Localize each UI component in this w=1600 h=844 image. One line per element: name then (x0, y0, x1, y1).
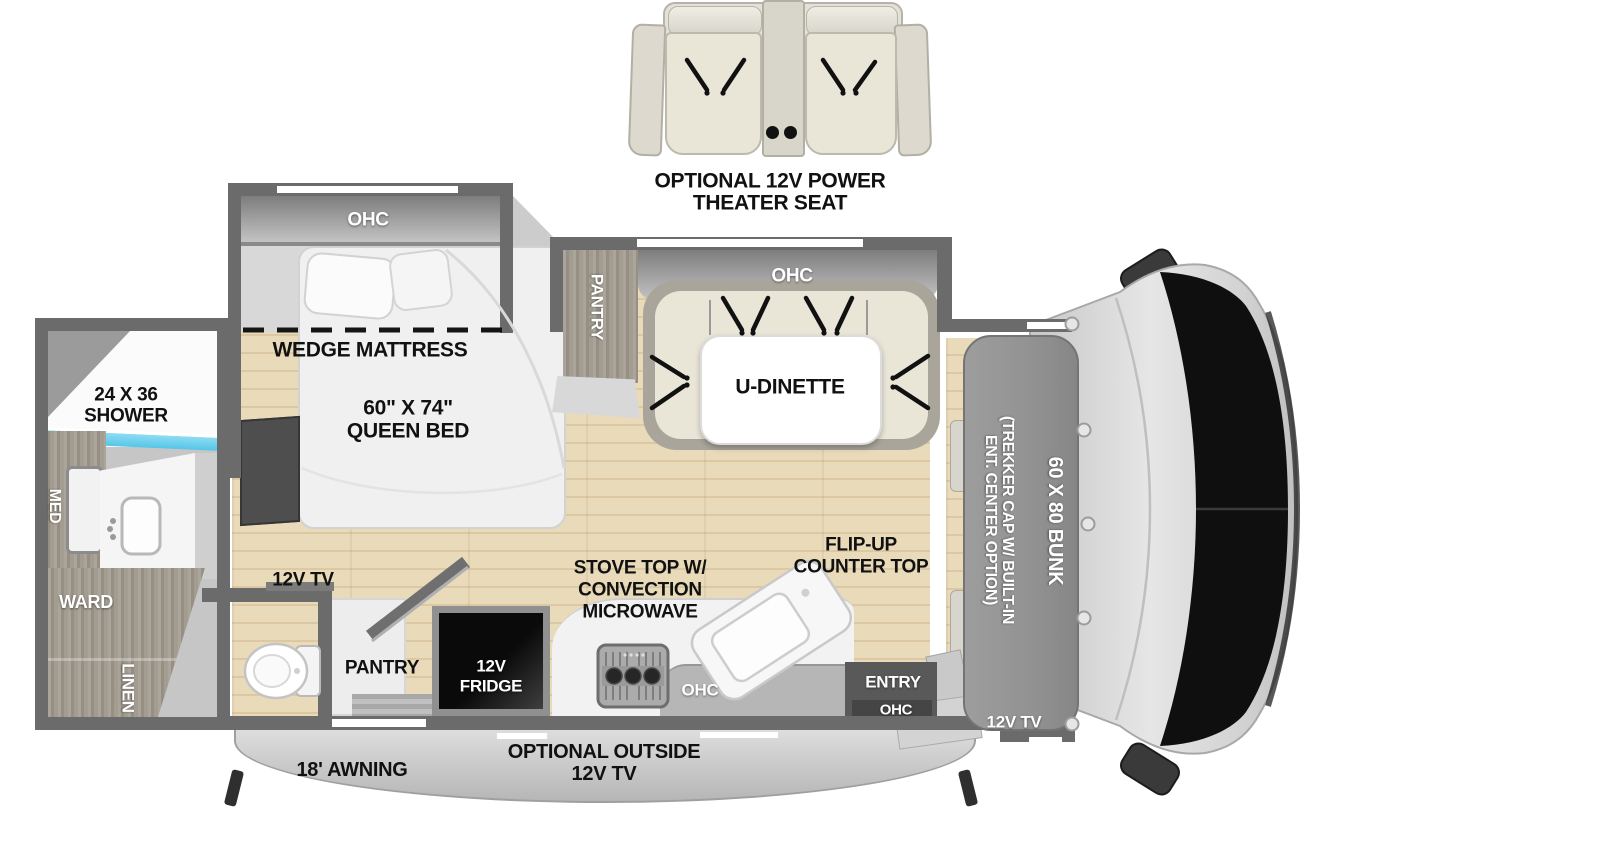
flip-counter-label-line1: FLIP-UP (825, 536, 897, 555)
detail-overlay (0, 0, 1600, 844)
dinette-pantry-label: PANTRY (589, 274, 606, 340)
toilet-icon (245, 644, 320, 698)
stove-label-line1: STOVE TOP W/ (574, 559, 707, 578)
entry-label: ENTRY (865, 674, 921, 691)
bunk-label: 60 X 80 BUNK (1045, 457, 1065, 586)
theater-stitch-dots (704, 90, 858, 95)
flip-counter-label-line2: COUNTER TOP (794, 558, 929, 577)
linen-label: LINEN (120, 663, 137, 713)
stove-top-icon (598, 645, 668, 707)
trekker-cap-label-line1: (TREKKER CAP W/ BUILT-IN (999, 416, 1016, 624)
outside-tv-label-line1: OPTIONAL OUTSIDE (508, 742, 701, 762)
stove-label-line3: MICROWAVE (582, 603, 697, 622)
theater-option-label-line1: OPTIONAL 12V POWER (654, 171, 885, 192)
shower-label-line2: SHOWER (84, 407, 168, 426)
queen-bed-label-line2: QUEEN BED (347, 421, 469, 442)
bedroom-tv-label: 12V TV (272, 571, 334, 590)
dinette-ohc-label: OHC (771, 267, 812, 286)
bed-pillows (304, 249, 454, 320)
ward-label: WARD (59, 593, 113, 611)
cab-tv-label: 12V TV (987, 714, 1042, 731)
door-panel (370, 562, 468, 641)
cab-rivets (1066, 318, 1095, 731)
bedroom-ohc-label: OHC (347, 211, 388, 230)
theater-option-label-line2: THEATER SEAT (693, 193, 847, 214)
fridge-label-line1: 12V (476, 658, 505, 675)
rv-floorplan: OPTIONAL 12V POWER THEATER SEAT OHC WEDG… (0, 0, 1600, 844)
kitchen-ohc-label: OHC (682, 682, 719, 699)
shower-label-line1: 24 X 36 (94, 386, 157, 405)
u-dinette-label: U-DINETTE (735, 377, 844, 398)
theater-stitches (687, 60, 875, 90)
bathroom-sink-icon (107, 498, 160, 554)
queen-bed-label-line1: 60" X 74" (363, 398, 453, 419)
entry-ohc-label: OHC (880, 703, 912, 718)
trekker-cap-label-line2: ENT. CENTER OPTION) (982, 416, 999, 624)
trekker-cap-label: (TREKKER CAP W/ BUILT-IN ENT. CENTER OPT… (982, 416, 1016, 624)
kitchen-pantry-label: PANTRY (345, 659, 419, 678)
stove-label-line2: CONVECTION (578, 581, 702, 600)
outside-tv-label-line2: 12V TV (572, 764, 637, 784)
fridge-label-line2: FRIDGE (460, 678, 522, 695)
med-cabinet-label: MED (46, 489, 62, 524)
wedge-mattress-label: WEDGE MATTRESS (273, 340, 468, 361)
awning-label: 18' AWNING (296, 760, 407, 780)
